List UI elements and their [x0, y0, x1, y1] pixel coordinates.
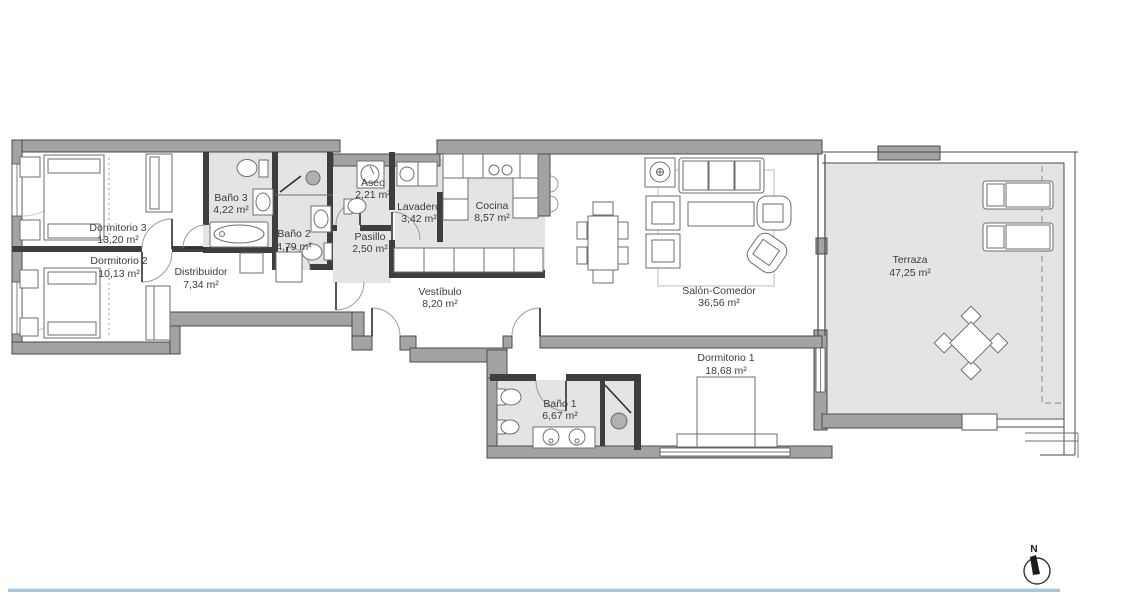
floor-plan: Dormitorio 3 13,20 m² Dormitorio 2 10,13…: [0, 0, 1144, 603]
label-distribuidor-name: Distribuidor: [174, 266, 228, 278]
label-aseo-name: Aseo: [361, 177, 385, 189]
tv-stand: [645, 158, 675, 187]
side-chair: [646, 234, 680, 268]
label-salon-name: Salón-Comedor: [682, 285, 756, 297]
kitchen-sink: [489, 165, 499, 175]
radiator-bumps: [550, 176, 558, 212]
label-dormitorio3-name: Dormitorio 3: [89, 222, 146, 234]
bed-dormitorio1: [677, 377, 777, 447]
label-lavadero-name: Lavadero: [397, 201, 441, 213]
nightstand: [20, 157, 40, 177]
label-dormitorio1-name: Dormitorio 1: [697, 352, 754, 364]
label-vestibulo-area: 8,20 m²: [422, 298, 458, 310]
exterior-steps: [1025, 433, 1078, 458]
nightstand: [20, 220, 40, 240]
label-bano3-area: 4,22 m²: [213, 204, 249, 216]
nightstand: [20, 318, 38, 336]
toilet-bathroom3: [237, 160, 268, 178]
vanity-double-sink: [533, 427, 595, 448]
bed-dormitorio2: [44, 268, 100, 338]
sink-bathroom3: [253, 189, 273, 215]
label-cocina-area: 8,57 m²: [474, 212, 510, 224]
hall-closet: [240, 253, 263, 273]
toilet-bathroom1: [497, 389, 521, 405]
kitchen-counter-bottom: [394, 248, 543, 272]
label-dormitorio1-area: 18,68 m²: [705, 365, 747, 377]
wardrobe-dormitorio2: [146, 286, 170, 340]
bidet-bathroom1: [497, 420, 519, 434]
label-dormitorio2-area: 10,13 m²: [98, 268, 140, 280]
label-bano1-area: 6,67 m²: [542, 410, 578, 422]
armchair: [757, 196, 791, 230]
floor-plan-page: Dormitorio 3 13,20 m² Dormitorio 2 10,13…: [0, 0, 1144, 603]
door-arc-bathroom3: [183, 225, 206, 248]
window-dormitorio1: [660, 448, 790, 456]
bathtub: [210, 222, 268, 247]
dining-table: [588, 216, 618, 270]
washer-dryer: [397, 162, 437, 186]
hall-closet: [276, 252, 302, 282]
label-bano2-area: 4,79 m²: [276, 241, 312, 253]
label-dormitorio2-name: Dormitorio 2: [90, 255, 147, 267]
nightstand: [20, 270, 38, 288]
label-aseo-area: 2,21 m²: [355, 189, 391, 201]
label-cocina-name: Cocina: [476, 200, 509, 212]
armchair: [743, 229, 790, 276]
sofa: [679, 158, 764, 193]
living-furniture: [577, 158, 791, 286]
north-label: N: [1030, 544, 1037, 555]
kitchen-sink: [502, 165, 512, 175]
sun-lounger: [983, 181, 1053, 209]
coffee-table: [688, 202, 754, 226]
label-salon-area: 36,56 m²: [698, 297, 740, 309]
label-terraza-area: 47,25 m²: [889, 267, 931, 279]
sun-lounger: [983, 223, 1053, 251]
door-arc-dormitorio1: [512, 308, 540, 336]
wardrobe-dormitorio3: [146, 154, 172, 212]
label-dormitorio3-area: 13,20 m²: [97, 234, 139, 246]
label-pasillo-area: 2,50 m²: [352, 243, 388, 255]
accent-line: [8, 588, 1060, 592]
door-arc-entry: [372, 308, 400, 336]
kitchen-counter-top: [443, 154, 538, 178]
label-bano2-name: Baño 2: [277, 228, 310, 240]
dining-table-set: [577, 202, 628, 283]
label-vestibulo-name: Vestíbulo: [418, 286, 461, 298]
label-lavadero-area: 3,42 m²: [401, 213, 437, 225]
window-dormitorio1-terraza: [816, 348, 825, 392]
kitchen-tall-units: [513, 178, 538, 218]
side-chair: [646, 196, 680, 230]
label-bano1-name: Baño 1: [543, 398, 576, 410]
sink-bathroom2: [311, 206, 331, 232]
label-bano3-name: Baño 3: [214, 192, 247, 204]
label-pasillo-name: Pasillo: [355, 231, 386, 243]
kitchen-counter-left: [443, 178, 468, 220]
door-arc-pasillo: [336, 282, 364, 310]
label-distribuidor-area: 7,34 m²: [183, 279, 219, 291]
north-compass: N: [1024, 544, 1050, 584]
label-terraza-name: Terraza: [892, 254, 927, 266]
